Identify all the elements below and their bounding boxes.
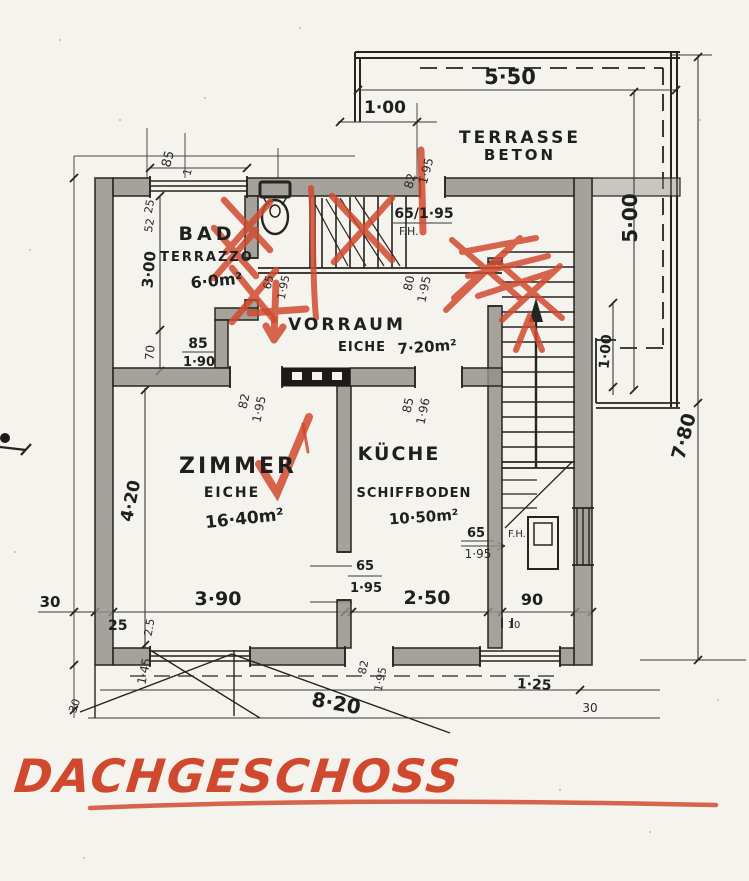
dim-vorraum-right-door-h: 1·96 — [413, 397, 432, 426]
wall-bottom-c — [393, 648, 480, 665]
wall-left — [95, 178, 113, 665]
red-x-top-stairs — [332, 196, 392, 262]
terrace-parapet-wall — [592, 178, 680, 196]
dim-bad-door-h: 1·90 — [183, 355, 215, 370]
room-area-bad: 6·0m² — [190, 269, 243, 292]
wall-cross-c — [462, 368, 502, 386]
wall-bottom-d — [560, 648, 574, 665]
room-label-kueche: KÜCHE — [358, 441, 441, 465]
dim-bad-win-w: 85 — [159, 149, 178, 169]
dim-left-52: 52 — [142, 217, 157, 233]
dim-bottom-10: 10 — [508, 620, 521, 631]
dim-bottom-125: 1·25 — [517, 676, 552, 694]
wall-right — [574, 178, 592, 665]
dim-kueche-door-w: 65 — [356, 559, 374, 574]
dim-terrace-100: 1·00 — [597, 333, 616, 369]
terrace-label-1: TERRASSE — [459, 128, 581, 148]
room-area-vorraum: 7·20m² — [397, 336, 457, 358]
dim-bottom-30: 30 — [582, 701, 597, 715]
dim-bottom-820: 8·20 — [310, 687, 363, 719]
terrace-label-2: BETON — [484, 146, 556, 164]
dim-left-70: 70 — [142, 344, 157, 360]
wall-bad-jog-v — [215, 320, 228, 368]
page-edge-arrow — [0, 433, 31, 455]
dim-stair-right-door-w: 80 — [401, 274, 418, 292]
room-area-zimmer: 16·40m² — [204, 505, 285, 533]
window-bottom-right — [480, 651, 560, 661]
dim-left-25: 25 — [142, 198, 157, 214]
dim-bottom-90: 90 — [521, 590, 543, 609]
dim-left-300: 3·00 — [138, 250, 159, 288]
dim-bottom-390: 3·90 — [195, 588, 242, 610]
dim-bottom-250: 2·50 — [404, 587, 451, 609]
dim-left-wall-25: 25 — [108, 618, 127, 634]
dim-stair-right-door-h: 1·95 — [414, 275, 433, 304]
room-label-zimmer: ZIMMER — [179, 454, 297, 479]
dim-kueche-door-h: 1·95 — [350, 581, 382, 596]
red-caret-stairs — [516, 318, 542, 350]
room-label-vorraum: VORRAUM — [288, 315, 406, 335]
red-marker-annotations — [90, 150, 716, 808]
wall-partition-a — [337, 386, 351, 552]
room-area-kueche: 10·50m² — [388, 506, 459, 529]
dim-left-420: 4·20 — [117, 478, 145, 523]
wall-top-a — [113, 178, 150, 196]
room-label-bad: BAD — [179, 223, 236, 245]
wall-partition-b — [337, 600, 351, 648]
dim-stair-door: 65/1·95 — [394, 206, 453, 222]
dim-vorraum-door-h: 1·95 — [249, 395, 268, 424]
hatched-wall-block — [282, 368, 350, 386]
wall-cross-a — [113, 368, 230, 386]
dim-right-500: 5·00 — [618, 193, 642, 242]
dim-bottom-door-w: 82 — [356, 659, 372, 675]
room-finish-bad: TERRAZZO — [160, 250, 254, 265]
plan-title: DACHGESCHOSS — [12, 749, 464, 803]
room-finish-vorraum: EICHE — [338, 340, 386, 355]
dim-left-30: 30 — [40, 593, 61, 611]
room-finish-zimmer: EICHE — [204, 485, 260, 501]
dim-top-100: 1·00 — [364, 98, 406, 118]
window-bad — [150, 181, 247, 191]
labels: DACHGESCHOSS TERRASSE BETON 5·50 1·00 5·… — [12, 65, 701, 803]
dim-kueche-win-w: 65 — [467, 526, 485, 541]
dim-bottom-door-h: 1·95 — [372, 666, 390, 693]
wall-stair-west — [488, 306, 502, 648]
dim-right-780: 7·80 — [668, 411, 701, 462]
dim-wc-door-h: 1·95 — [275, 274, 293, 301]
room-finish-kueche: SCHIFFBODEN — [357, 486, 472, 501]
red-scribble-terrace-door — [446, 238, 562, 320]
dim-vorraum-right-door-w: 85 — [400, 396, 417, 414]
dim-bad-door-w: 85 — [188, 336, 207, 352]
dim-kueche-win-fh: F.H. — [508, 529, 526, 540]
wall-top-c — [445, 178, 574, 196]
scanned-floor-plan-page: DACHGESCHOSS TERRASSE BETON 5·50 1·00 5·… — [0, 0, 749, 881]
floor-plan-drawing: DACHGESCHOSS TERRASSE BETON 5·50 1·00 5·… — [0, 0, 749, 881]
dim-stair-door-fh: F.H. — [399, 225, 419, 238]
dim-vorraum-door-w: 82 — [236, 392, 253, 410]
dim-top-550: 5·50 — [484, 65, 536, 89]
wall-bottom-b — [250, 648, 345, 665]
wall-cross-b — [350, 368, 415, 386]
dim-kueche-win-h: 1·95 — [465, 547, 492, 561]
dim-left-wall-25b: 2.5 — [142, 618, 158, 637]
